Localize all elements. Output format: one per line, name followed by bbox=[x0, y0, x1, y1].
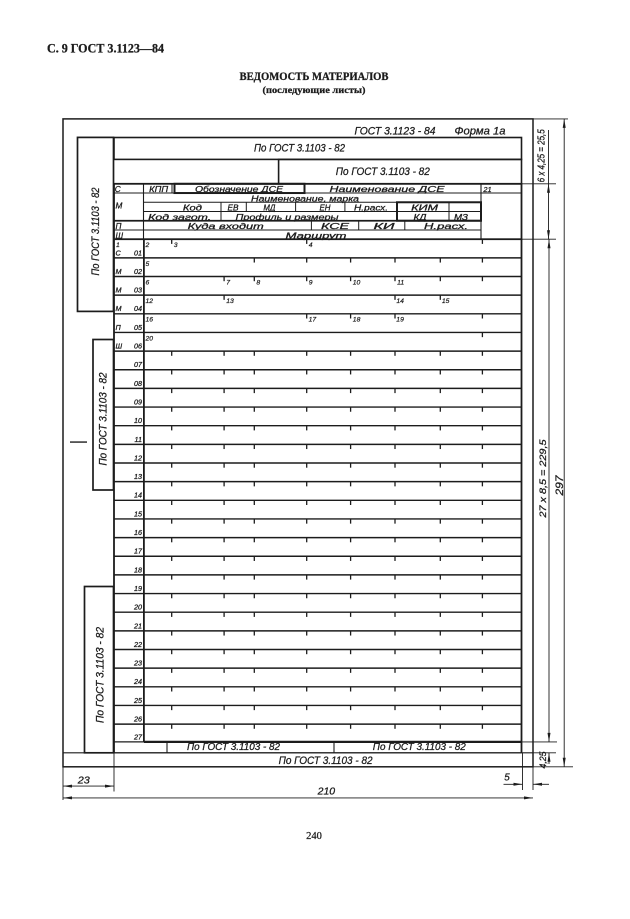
svg-text:26: 26 bbox=[133, 715, 142, 724]
svg-text:4: 4 bbox=[309, 242, 313, 249]
svg-text:08: 08 bbox=[134, 379, 142, 388]
svg-text:Наименование ДСЕ: Наименование ДСЕ bbox=[330, 185, 446, 194]
svg-text:23: 23 bbox=[133, 659, 142, 668]
svg-text:М: М bbox=[116, 286, 122, 295]
svg-text:10: 10 bbox=[134, 416, 142, 425]
svg-text:297: 297 bbox=[554, 475, 566, 497]
svg-text:П: П bbox=[116, 323, 122, 332]
svg-text:7: 7 bbox=[226, 279, 230, 286]
svg-text:11: 11 bbox=[135, 435, 142, 444]
svg-text:15: 15 bbox=[442, 298, 450, 305]
svg-text:01: 01 bbox=[134, 248, 142, 257]
svg-text:КД: КД bbox=[414, 213, 427, 222]
svg-text:27 х 8,5 = 229,5: 27 х 8,5 = 229,5 bbox=[538, 438, 548, 518]
svg-text:Форма 1а: Форма 1а bbox=[455, 125, 506, 137]
svg-text:МД: МД bbox=[263, 204, 275, 213]
svg-text:Н.расх.: Н.расх. bbox=[354, 204, 388, 213]
svg-text:С: С bbox=[115, 185, 121, 194]
svg-text:Маршрут: Маршрут bbox=[286, 231, 347, 240]
svg-text:03: 03 bbox=[134, 286, 142, 295]
svg-text:16: 16 bbox=[134, 528, 142, 537]
svg-text:17: 17 bbox=[309, 317, 317, 324]
svg-text:5: 5 bbox=[504, 772, 510, 783]
svg-text:13: 13 bbox=[134, 472, 142, 481]
svg-text:По ГОСТ 3.1103 - 82: По ГОСТ 3.1103 - 82 bbox=[98, 373, 110, 466]
svg-text:По ГОСТ 3.1103 - 82: По ГОСТ 3.1103 - 82 bbox=[90, 188, 102, 276]
svg-text:02: 02 bbox=[134, 267, 142, 276]
svg-text:КПП: КПП bbox=[149, 185, 168, 194]
svg-text:16: 16 bbox=[146, 317, 154, 324]
svg-text:Ш: Ш bbox=[116, 231, 124, 240]
svg-text:ГОСТ 3.1123 - 84: ГОСТ 3.1123 - 84 bbox=[355, 125, 436, 137]
svg-text:21: 21 bbox=[482, 185, 491, 194]
svg-text:ЕН: ЕН bbox=[320, 204, 331, 213]
svg-text:11: 11 bbox=[397, 279, 404, 286]
svg-text:19: 19 bbox=[396, 317, 404, 324]
svg-text:15: 15 bbox=[134, 509, 143, 518]
svg-text:04: 04 bbox=[134, 304, 142, 313]
svg-text:Профиль и размеры: Профиль и размеры bbox=[236, 213, 339, 222]
svg-text:По ГОСТ 3.1103 - 82: По ГОСТ 3.1103 - 82 bbox=[254, 142, 345, 154]
svg-text:25: 25 bbox=[133, 696, 143, 705]
svg-text:17: 17 bbox=[134, 547, 143, 556]
svg-text:МЗ: МЗ bbox=[454, 213, 468, 222]
svg-text:14: 14 bbox=[134, 491, 142, 500]
svg-text:240: 240 bbox=[306, 831, 322, 842]
svg-text:Н.расх.: Н.расх. bbox=[424, 222, 468, 231]
svg-text:210: 210 bbox=[317, 787, 336, 798]
svg-text:23: 23 bbox=[77, 775, 91, 786]
svg-text:18: 18 bbox=[134, 565, 142, 574]
svg-text:12: 12 bbox=[134, 453, 142, 462]
svg-text:21: 21 bbox=[133, 621, 142, 630]
svg-text:06: 06 bbox=[134, 342, 142, 351]
svg-text:(последующие листы): (последующие листы) bbox=[263, 85, 366, 96]
svg-text:4,25: 4,25 bbox=[537, 751, 548, 769]
svg-text:ЕВ: ЕВ bbox=[228, 204, 240, 213]
svg-text:КСЕ: КСЕ bbox=[321, 222, 350, 231]
svg-text:Обозначение ДСЕ: Обозначение ДСЕ bbox=[195, 185, 284, 194]
svg-text:07: 07 bbox=[134, 360, 143, 369]
svg-text:5: 5 bbox=[146, 261, 150, 268]
svg-text:По ГОСТ 3.1103 - 82: По ГОСТ 3.1103 - 82 bbox=[373, 742, 466, 753]
svg-text:2: 2 bbox=[145, 242, 150, 249]
svg-text:ВЕДОМОСТЬ МАТЕРИАЛОВ: ВЕДОМОСТЬ МАТЕРИАЛОВ bbox=[240, 71, 389, 83]
svg-text:С: С bbox=[116, 248, 122, 257]
svg-text:Ш: Ш bbox=[116, 342, 123, 351]
svg-text:По ГОСТ 3.1103 - 82: По ГОСТ 3.1103 - 82 bbox=[95, 627, 107, 723]
svg-text:Наименование, марка: Наименование, марка bbox=[251, 195, 360, 204]
svg-text:С. 9 ГОСТ 3.1123—84: С. 9 ГОСТ 3.1123—84 bbox=[47, 42, 164, 56]
svg-text:09: 09 bbox=[134, 397, 142, 406]
svg-text:27: 27 bbox=[133, 732, 143, 741]
svg-text:По ГОСТ 3.1103 - 82: По ГОСТ 3.1103 - 82 bbox=[187, 742, 280, 753]
svg-text:6: 6 bbox=[146, 279, 150, 286]
svg-text:По ГОСТ 3.1103 - 82: По ГОСТ 3.1103 - 82 bbox=[336, 166, 430, 178]
svg-text:6 х 4,25 = 25,5: 6 х 4,25 = 25,5 bbox=[536, 129, 547, 182]
svg-text:М: М bbox=[116, 267, 122, 276]
svg-text:14: 14 bbox=[396, 298, 404, 305]
svg-text:КИ: КИ bbox=[374, 222, 395, 231]
svg-text:КИМ: КИМ bbox=[411, 204, 438, 213]
svg-text:13: 13 bbox=[226, 298, 234, 305]
svg-text:По ГОСТ 3.1103 - 82: По ГОСТ 3.1103 - 82 bbox=[279, 755, 373, 767]
svg-text:20: 20 bbox=[145, 335, 154, 342]
svg-text:П: П bbox=[116, 222, 122, 231]
svg-text:05: 05 bbox=[134, 323, 143, 332]
svg-text:20: 20 bbox=[133, 603, 142, 612]
svg-text:10: 10 bbox=[353, 279, 361, 286]
svg-text:Куда входит: Куда входит bbox=[188, 222, 264, 231]
svg-text:18: 18 bbox=[353, 317, 361, 324]
svg-text:М: М bbox=[116, 202, 123, 211]
svg-text:19: 19 bbox=[134, 584, 142, 593]
svg-text:Код: Код bbox=[183, 204, 203, 213]
svg-text:12: 12 bbox=[146, 298, 154, 305]
svg-text:24: 24 bbox=[133, 677, 142, 686]
svg-text:9: 9 bbox=[309, 279, 313, 286]
svg-text:8: 8 bbox=[256, 279, 260, 286]
svg-text:22: 22 bbox=[133, 640, 142, 649]
svg-text:М: М bbox=[116, 304, 122, 313]
svg-text:Код загот.: Код загот. bbox=[148, 213, 211, 222]
svg-text:3: 3 bbox=[174, 242, 178, 249]
